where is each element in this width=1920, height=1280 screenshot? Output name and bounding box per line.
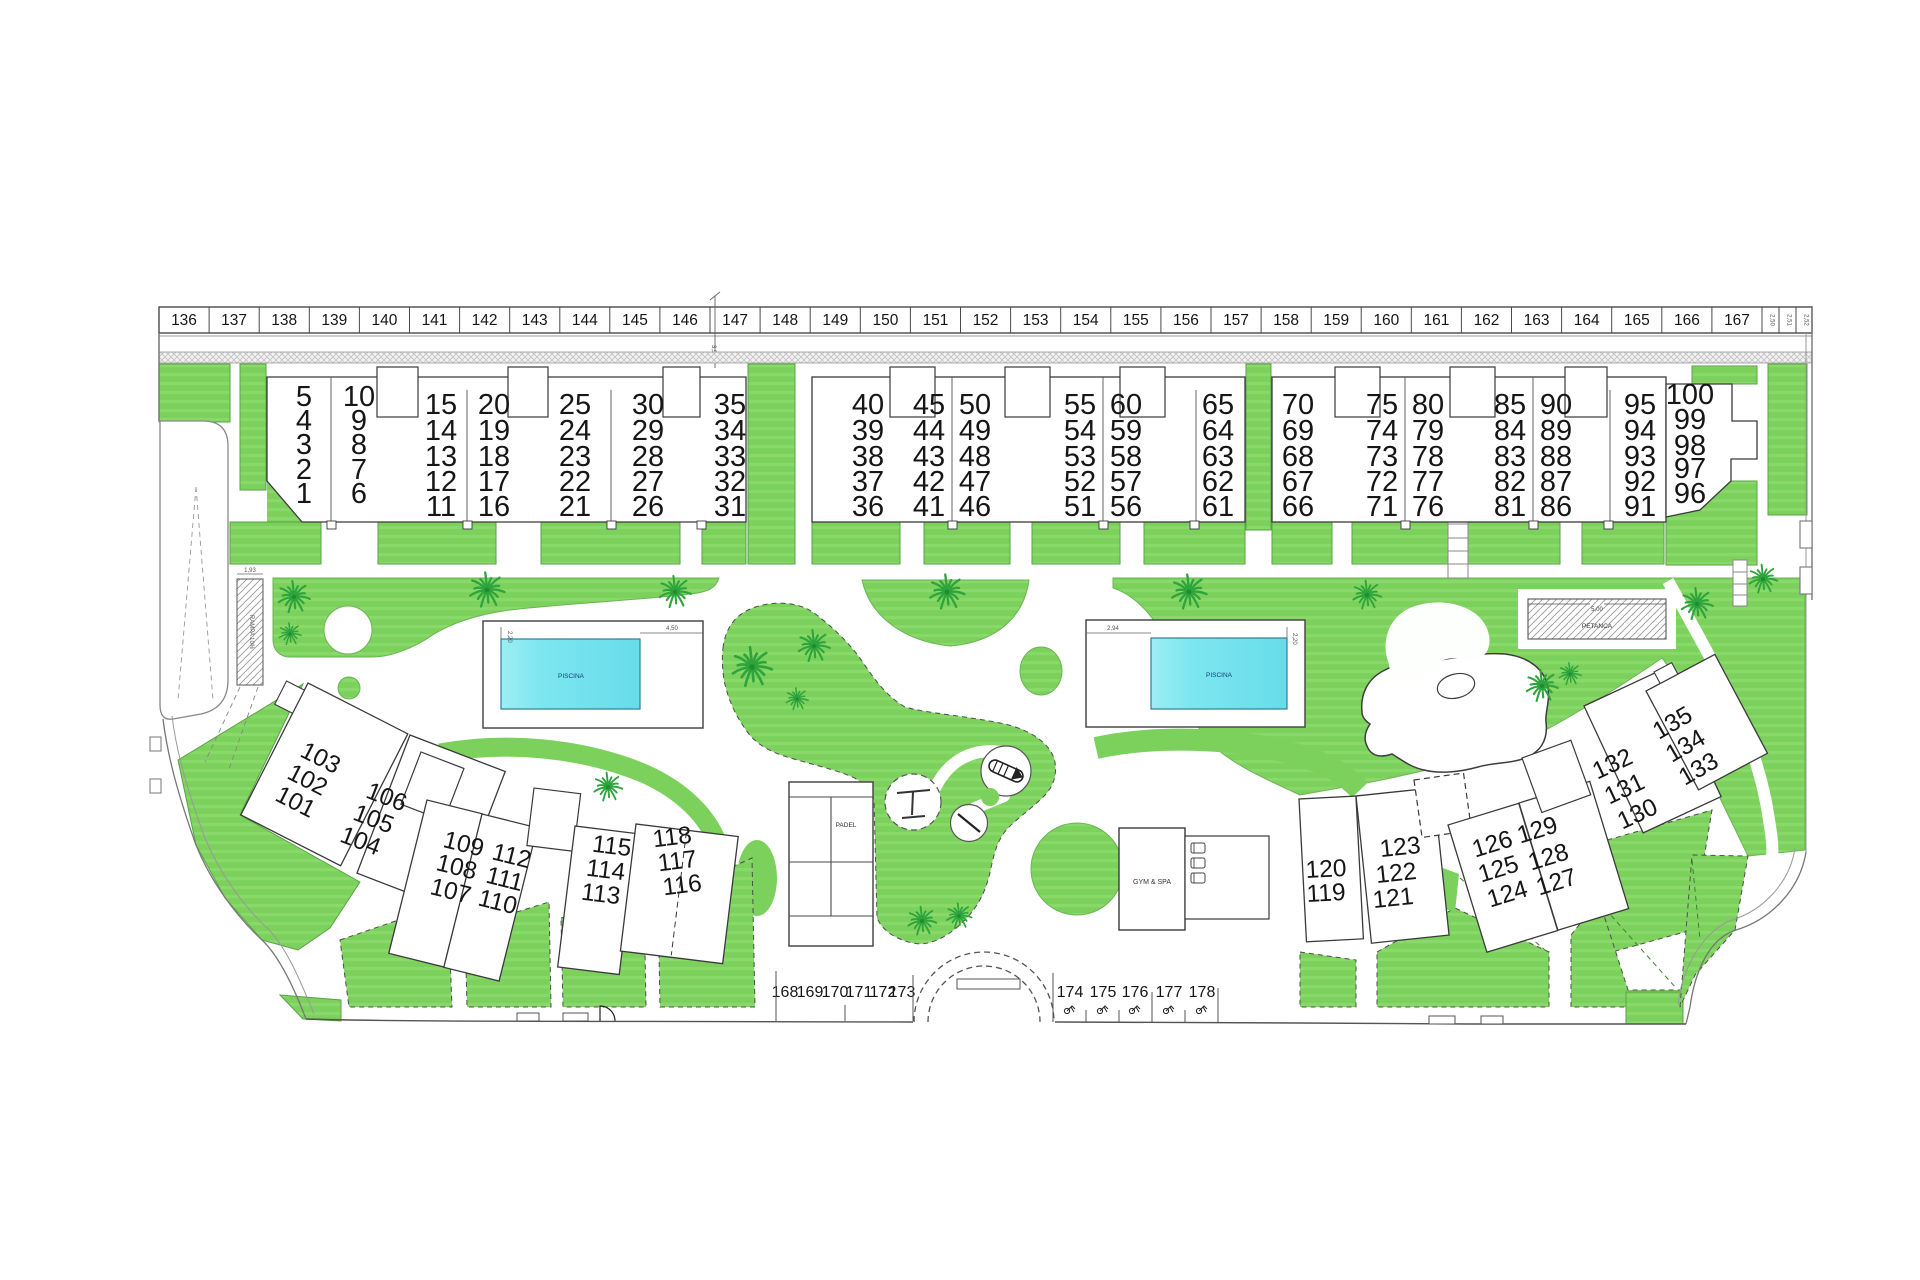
- svg-text:174: 174: [1057, 984, 1084, 1001]
- svg-text:RAMPA 10%: RAMPA 10%: [248, 615, 254, 650]
- svg-text:5,00: 5,00: [1591, 607, 1603, 613]
- svg-text:177: 177: [1156, 984, 1183, 1001]
- svg-text:146: 146: [672, 312, 698, 329]
- svg-text:46: 46: [959, 491, 991, 523]
- svg-text:113: 113: [580, 879, 622, 911]
- svg-text:157: 157: [1223, 312, 1249, 329]
- svg-text:4,50: 4,50: [666, 626, 678, 632]
- svg-text:GYM & SPA: GYM & SPA: [1133, 879, 1171, 886]
- svg-text:162: 162: [1474, 312, 1500, 329]
- svg-text:96: 96: [1674, 478, 1706, 510]
- svg-text:145: 145: [622, 312, 648, 329]
- svg-text:144: 144: [572, 312, 598, 329]
- svg-text:41: 41: [913, 491, 945, 523]
- svg-text:2,52: 2,52: [1803, 314, 1809, 326]
- svg-text:76: 76: [1412, 491, 1444, 523]
- svg-text:PISCINA: PISCINA: [1206, 672, 1233, 679]
- svg-text:21: 21: [559, 491, 591, 523]
- svg-text:161: 161: [1423, 312, 1449, 329]
- svg-text:PADEL: PADEL: [836, 822, 857, 829]
- svg-text:136: 136: [171, 312, 197, 329]
- svg-text:158: 158: [1273, 312, 1299, 329]
- svg-text:PISCINA: PISCINA: [558, 673, 585, 680]
- svg-text:152: 152: [973, 312, 999, 329]
- svg-text:175: 175: [1090, 984, 1117, 1001]
- svg-text:1: 1: [296, 478, 312, 510]
- svg-text:2,50: 2,50: [1769, 314, 1775, 326]
- svg-text:149: 149: [822, 312, 848, 329]
- svg-text:148: 148: [772, 312, 798, 329]
- svg-text:116: 116: [661, 870, 703, 902]
- svg-text:26: 26: [632, 491, 664, 523]
- svg-text:165: 165: [1624, 312, 1650, 329]
- svg-text:178: 178: [1189, 984, 1216, 1001]
- svg-text:151: 151: [923, 312, 949, 329]
- svg-text:153: 153: [1023, 312, 1049, 329]
- svg-text:167: 167: [1724, 312, 1750, 329]
- svg-text:51: 51: [1064, 491, 1096, 523]
- svg-text:163: 163: [1524, 312, 1550, 329]
- svg-text:137: 137: [221, 312, 247, 329]
- svg-text:2,94: 2,94: [1107, 626, 1119, 632]
- svg-text:66: 66: [1282, 491, 1314, 523]
- svg-text:2,20: 2,20: [1291, 633, 1297, 645]
- svg-text:142: 142: [472, 312, 498, 329]
- svg-text:140: 140: [371, 312, 397, 329]
- svg-text:123: 123: [1378, 832, 1421, 863]
- svg-text:61: 61: [1202, 491, 1234, 523]
- svg-text:164: 164: [1574, 312, 1600, 329]
- svg-text:155: 155: [1123, 312, 1149, 329]
- svg-text:141: 141: [422, 312, 448, 329]
- svg-text:2,20: 2,20: [506, 631, 512, 643]
- svg-text:150: 150: [872, 312, 898, 329]
- svg-text:PETANCA: PETANCA: [1582, 623, 1613, 630]
- svg-text:139: 139: [321, 312, 347, 329]
- svg-text:138: 138: [271, 312, 297, 329]
- svg-text:71: 71: [1366, 491, 1398, 523]
- svg-text:173: 173: [889, 984, 916, 1001]
- svg-text:147: 147: [722, 312, 748, 329]
- svg-text:36: 36: [852, 491, 884, 523]
- svg-text:119: 119: [1306, 879, 1346, 908]
- svg-text:1,93: 1,93: [244, 568, 256, 574]
- svg-text:86: 86: [1540, 491, 1572, 523]
- svg-text:143: 143: [522, 312, 548, 329]
- svg-text:121: 121: [1371, 883, 1414, 914]
- svg-text:176: 176: [1122, 984, 1149, 1001]
- svg-text:169: 169: [797, 984, 824, 1001]
- svg-text:16: 16: [478, 491, 510, 523]
- svg-text:2,51: 2,51: [1786, 314, 1792, 326]
- svg-text:11: 11: [426, 491, 456, 523]
- svg-text:6: 6: [351, 478, 367, 510]
- svg-text:31: 31: [714, 491, 746, 523]
- svg-text:159: 159: [1323, 312, 1349, 329]
- svg-text:156: 156: [1173, 312, 1199, 329]
- svg-text:170: 170: [822, 984, 849, 1001]
- svg-text:56: 56: [1110, 491, 1142, 523]
- svg-text:154: 154: [1073, 312, 1099, 329]
- svg-text:81: 81: [1494, 491, 1526, 523]
- svg-text:160: 160: [1373, 312, 1399, 329]
- svg-text:91: 91: [1624, 491, 1656, 523]
- svg-text:166: 166: [1674, 312, 1700, 329]
- svg-text:171: 171: [846, 984, 873, 1001]
